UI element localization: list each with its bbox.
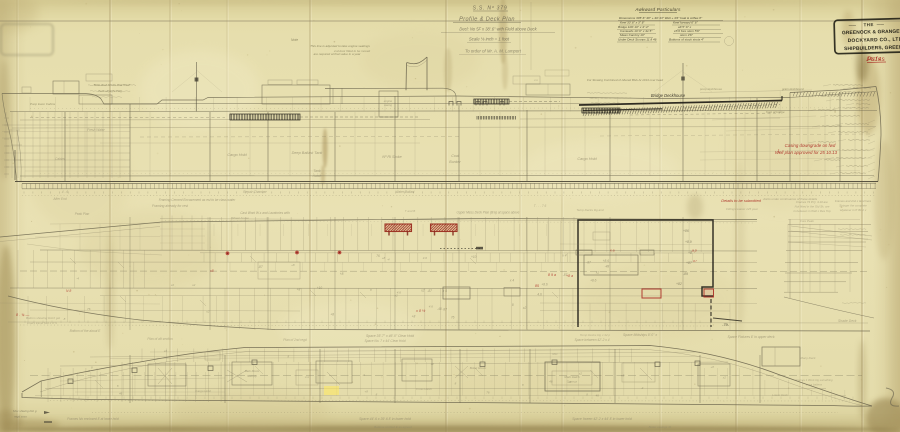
svg-text:+10: +10 [471, 255, 477, 259]
svg-text:Plan of 2nd regd: Plan of 2nd regd [283, 338, 307, 342]
svg-text:Space No. 7 x 44' Clear H: Space No. 7 x 44' Clear Hold [364, 339, 405, 343]
svg-text:+8.6: +8.6 [590, 279, 597, 283]
svg-text:Dimensions 305'.6" 48" + 40'.: Dimensions 305'.6" 48" + 40'.43" Well + … [619, 16, 703, 20]
svg-text:THE: THE [863, 22, 873, 27]
svg-text:8 9 a: 8 9 a [548, 273, 556, 277]
svg-text:-87: -87 [563, 273, 568, 277]
svg-text:Space 35'.7" x 46'.0" Clear: Space 35'.7" x 46'.0" Clear Hold [366, 334, 414, 338]
svg-text:x2: x2 [420, 288, 425, 292]
svg-text:Bunker: Bunker [449, 160, 461, 164]
svg-text:+8: +8 [291, 263, 295, 267]
svg-text:Fore Peak: Fore Peak [800, 219, 814, 223]
svg-text:Cross Hatch: Cross Hatch [416, 387, 432, 391]
svg-text:x2: x2 [163, 349, 167, 353]
svg-text:Samply: Samply [247, 374, 257, 378]
svg-text:x2: x2 [578, 372, 582, 376]
svg-text:After End: After End [52, 197, 67, 201]
svg-text:Stringer the complete: Stringer the complete [839, 204, 867, 208]
svg-text:T . . . 7 6: T . . . 7 6 [534, 204, 547, 208]
svg-text:46: 46 [596, 394, 600, 398]
svg-text:-4: -4 [387, 258, 390, 262]
svg-text:+8: +8 [330, 312, 334, 316]
svg-text:+8: +8 [382, 256, 386, 260]
svg-text:8: 8 [512, 303, 514, 307]
svg-text:x 4: x 4 [442, 289, 447, 293]
svg-text:76: 76 [87, 307, 91, 311]
svg-text:Temp Decks Dg x 42 p: Temp Decks Dg x 42 p [580, 333, 611, 337]
svg-text:Scale ⅛ inch = 1 foot: Scale ⅛ inch = 1 foot [469, 37, 510, 42]
svg-text:Space between 42'-2 x 4: Space between 42'-2 x 4 [575, 338, 610, 342]
svg-text:losers travel Mid x 4 ½: losers travel Mid x 4 ½ [27, 321, 58, 325]
svg-text:4.6: 4.6 [423, 256, 428, 260]
svg-text:+8: +8 [87, 369, 91, 373]
svg-text:Mean Cambry 19": Mean Cambry 19" [620, 33, 646, 37]
svg-text:Hatch: Hatch [313, 174, 322, 178]
svg-text:x2: x2 [205, 310, 210, 314]
svg-text:Many Deck: Many Deck [800, 356, 816, 360]
svg-text:casing: casing [384, 103, 393, 107]
svg-text:-89: -89 [683, 272, 688, 276]
svg-text:Boiler casings 41: Boiler casings 41 [649, 425, 672, 429]
svg-text:Mxx shwing Dxt g: Mxx shwing Dxt g [13, 409, 37, 413]
svg-text:Awkward Particulars: Awkward Particulars [634, 7, 681, 12]
svg-text:xxx: xxx [533, 79, 539, 82]
svg-text:in between in Well x Res Top: in between in Well x Res Top [793, 209, 831, 213]
svg-text:76: 76 [486, 391, 490, 395]
svg-text:x2: x2 [722, 375, 726, 379]
svg-text:Coal: Coal [451, 154, 459, 158]
svg-text:Cargo Hold: Cargo Hold [227, 153, 247, 157]
svg-text:+82: +82 [676, 282, 682, 286]
svg-text:76: 76 [376, 254, 380, 258]
svg-text:extra battens: extra battens [806, 383, 823, 387]
svg-text:4 - 6: 4 - 6 [62, 190, 69, 194]
svg-text:+8: +8 [297, 287, 301, 291]
svg-text:For Stowing Combined of Altere: For Stowing Combined of Altered Bbls At … [587, 78, 663, 82]
svg-text:Main Hatch: Main Hatch [564, 375, 580, 379]
svg-text:+8: +8 [340, 272, 344, 276]
svg-text:This line is adjusted to take: This line is adjusted to take engine sea… [310, 44, 370, 48]
svg-text:T and B: T and B [405, 209, 416, 213]
svg-text:-4: -4 [641, 386, 644, 390]
svg-text:regd xxxx: regd xxxx [14, 415, 27, 419]
svg-text:x2: x2 [170, 283, 175, 287]
svg-text:Repair Chamber: Repair Chamber [243, 190, 267, 194]
svg-text:To order of Mr. A. M. Lampor: To order of Mr. A. M. Lamport [465, 49, 522, 54]
svg-text:poop deckhouse: poop deckhouse [699, 87, 722, 91]
svg-text:-87: -87 [427, 289, 432, 293]
svg-text:-79-: -79- [722, 322, 730, 327]
svg-text:Under Deck Sunnys 11 ft 46: Under Deck Sunnys 11 ft 46 [618, 38, 657, 42]
svg-text:4.6: 4.6 [537, 292, 542, 296]
svg-text:front of bridge: front of bridge [766, 110, 785, 114]
svg-text:Cargo Hold: Cargo Hold [577, 157, 597, 161]
svg-text:Casing downgrade on fwd: Casing downgrade on fwd [785, 143, 836, 148]
svg-text:Fresh Water: Fresh Water [87, 128, 105, 132]
svg-text:Cargo Hold: Cargo Hold [195, 389, 211, 393]
svg-text:x a: x a [609, 249, 615, 253]
svg-text:Framing Cement Encasement a: Framing Cement Encasement as est to be c… [159, 198, 236, 202]
svg-text:Bridge Deckhouse: Bridge Deckhouse [651, 93, 686, 98]
svg-text:Frames 74 P.Q. 4.10 are: Frames 74 P.Q. 4.10 are [796, 200, 828, 204]
svg-text:.a p: .a p [691, 249, 697, 253]
svg-text:+8.9: +8.9 [685, 240, 692, 244]
svg-text:-87: -87 [586, 261, 591, 265]
svg-text:Shade Deck: Shade Deck [838, 319, 857, 323]
svg-text:Frames No enclosed E at l: Frames No enclosed E at lower hold [67, 417, 119, 421]
svg-text:Boat deck house Oak finish: Boat deck house Oak finish [94, 83, 131, 87]
svg-text:Plan of aft section: Plan of aft section [147, 337, 173, 341]
svg-text:J4/14: J4/14 [865, 57, 881, 63]
svg-text:-48: -48 [605, 264, 610, 268]
svg-text:x4: x4 [567, 380, 571, 384]
svg-text:x 4: x 4 [509, 278, 514, 282]
svg-text:x2: x2 [191, 283, 196, 287]
svg-text:xxx: xxx [304, 375, 310, 379]
svg-text:——: —— [877, 22, 885, 26]
svg-text:x 8 ½: x 8 ½ [415, 309, 426, 313]
svg-text:Tank: Tank [313, 169, 321, 173]
svg-text:Well plan approved for 25 1: Well plan approved for 25 10.13 [775, 150, 838, 155]
svg-text:Peak Plan: Peak Plan [75, 212, 90, 216]
svg-text:Framing already for rest: Framing already for rest [152, 204, 189, 208]
svg-text:+8: +8 [412, 314, 416, 318]
svg-text:whatever in 8' Bk 2 x: whatever in 8' Bk 2 x [840, 208, 867, 212]
svg-text:Space 'tween 42'.2 x 44' E: Space 'tween 42'.2 x 44' E in lower hold [572, 417, 632, 421]
svg-text:Cabins: Cabins [55, 157, 65, 161]
svg-text:Space Midships 8'.0" x: Space Midships 8'.0" x [623, 333, 657, 337]
svg-text:Poop lower Cabins: Poop lower Cabins [30, 102, 56, 106]
svg-text:Space 44'.6 x 39'.6 E in l: Space 44'.6 x 39'.6 E in lower hold [359, 417, 411, 421]
svg-text:Frames 1 Work Dg something: Frames 1 Work Dg something [795, 378, 833, 382]
svg-text:Fittings waiver 125 year: Fittings waiver 125 year [726, 207, 759, 211]
svg-text:x2: x2 [595, 270, 600, 274]
svg-text:x2: x2 [430, 362, 434, 366]
svg-text:46: 46 [119, 391, 123, 395]
svg-text:Temp Decks Dg and: Temp Decks Dg and [576, 208, 603, 212]
svg-text:x8: x8 [209, 269, 214, 273]
svg-text:-87: -87 [442, 308, 447, 312]
svg-text:Water Ballast: Water Ballast [396, 190, 415, 194]
svg-text:Bottom showing Don't get: Bottom showing Don't get [26, 316, 60, 320]
svg-text:Wheel house: Wheel house [231, 216, 249, 220]
svg-text:N 8: N 8 [66, 289, 71, 293]
svg-text:Lower Deck: Lower Deck [772, 393, 788, 397]
svg-text:+8.6: +8.6 [603, 259, 610, 263]
svg-text:Deep Ballast Tank: Deep Ballast Tank [292, 151, 324, 155]
svg-text:x 4: x 4 [561, 254, 566, 258]
svg-text:stern 4'6": stern 4'6" [680, 33, 694, 37]
svg-text:+86: +86 [683, 229, 689, 233]
svg-text:Bottoms of stock struts 4": Bottoms of stock struts 4" [669, 38, 705, 42]
svg-text:85: 85 [535, 284, 539, 288]
svg-text:Dark Room: Dark Room [245, 369, 260, 373]
svg-text:-4: -4 [362, 373, 365, 377]
svg-text:46: 46 [549, 380, 553, 384]
svg-text:Battens omitted E as agree: Battens omitted E as agreed [374, 425, 412, 429]
svg-text:Cast Work W.s and Lavatori: Cast Work W.s and Lavatories with [240, 211, 290, 215]
svg-text:-48: -48 [437, 307, 442, 311]
svg-text:Bottom of the about E: Bottom of the about E [70, 329, 102, 333]
svg-text:-87: -87 [258, 265, 263, 269]
svg-text:x2: x2 [522, 306, 527, 310]
svg-text:+8: +8 [365, 390, 369, 394]
svg-text:Not fitted in the Old Sk. are: Not fitted in the Old Sk. are [795, 205, 830, 209]
svg-text:——: —— [849, 23, 857, 27]
svg-text:S.S. Nº 379: S.S. Nº 379 [473, 6, 508, 12]
svg-text:Nº Rl Stoke: Nº Rl Stoke [382, 155, 402, 159]
svg-text:-4: -4 [76, 277, 79, 281]
svg-text:Upper Mess Deck Plan (B¾): Upper Mess Deck Plan (B¾) at space above [457, 211, 520, 215]
svg-text:+8: +8 [711, 365, 715, 369]
svg-text:xxd door fitted to be move: xxd door fitted to be moved [333, 49, 371, 53]
svg-text:Details to be submitted: Details to be submitted [721, 198, 761, 203]
svg-text:Teak skylight Fittg: Teak skylight Fittg [98, 89, 122, 93]
svg-text:+10: +10 [317, 286, 323, 290]
svg-text:Note: Note [291, 38, 298, 42]
svg-text:+8.6: +8.6 [541, 282, 548, 286]
svg-text:4.6: 4.6 [429, 304, 434, 308]
svg-text:4.6: 4.6 [397, 290, 402, 294]
svg-text:Profile & Deck Plan: Profile & Deck Plan [459, 17, 515, 23]
svg-text:76: 76 [451, 316, 455, 320]
svg-text:+8: +8 [621, 373, 625, 377]
svg-text:Decl: No 5F x 38'.6" with: Decl: No 5F x 38'.6" with Field above De… [459, 27, 537, 32]
svg-text:Mxx: Mxx [552, 352, 558, 356]
svg-text:+87: +87 [686, 261, 692, 265]
svg-text:Space Fixtures E in upper: Space Fixtures E in upper deck [727, 335, 774, 339]
svg-text:Frames and 2nd x land her: Frames and 2nd x land here [835, 199, 872, 203]
